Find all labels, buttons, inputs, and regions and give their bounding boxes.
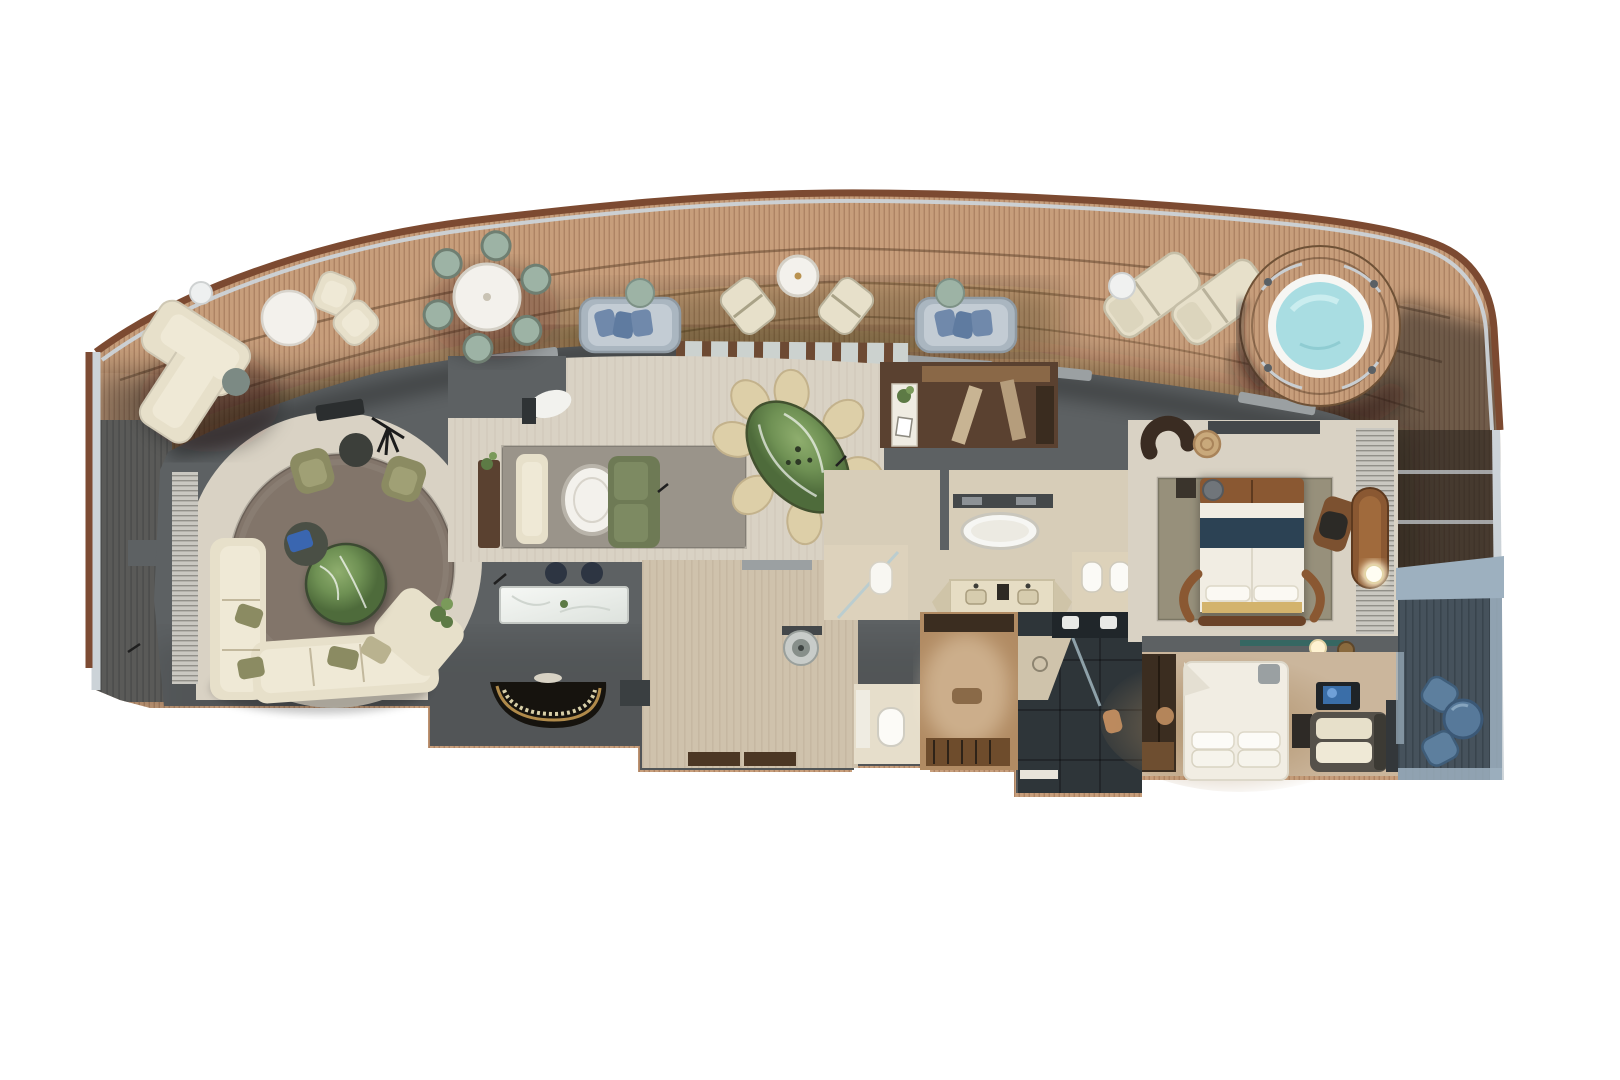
deck-side-table [190, 282, 212, 304]
master-bathroom [824, 470, 1140, 620]
aft-private-balcony [1396, 556, 1504, 780]
powder-room [854, 684, 930, 764]
toilet [1082, 562, 1102, 592]
whirlpool-tub [1239, 246, 1400, 406]
bench [952, 688, 982, 704]
console-with-plant [892, 384, 917, 446]
sink [966, 590, 986, 604]
louver-wardrobe [172, 472, 198, 684]
second-bedroom [1100, 648, 1398, 792]
pantry [880, 362, 1058, 448]
nightstand [1292, 714, 1312, 748]
drink-table [1109, 273, 1135, 299]
nightstand [1176, 478, 1196, 498]
sink [1018, 590, 1038, 604]
tray [997, 584, 1009, 600]
green-sofa [608, 456, 660, 548]
walk-in-closet [920, 612, 1018, 770]
foot-bench [1198, 616, 1306, 626]
sage-side-table [222, 368, 250, 396]
guest-bed [1184, 662, 1288, 780]
wood-console [478, 460, 500, 548]
wall-tv [522, 398, 536, 424]
toilet [870, 562, 892, 594]
navy-runner [1200, 518, 1304, 548]
suite-floor-plan [0, 0, 1620, 1080]
toilet [878, 708, 904, 746]
entry-door-mat [744, 752, 796, 766]
king-bed [1184, 476, 1321, 626]
sculpture-basin [784, 631, 818, 665]
sink [1062, 616, 1079, 629]
glass-door [1396, 652, 1404, 744]
tv [1316, 682, 1360, 710]
bar-stool [581, 562, 603, 584]
entry-door-mat [688, 752, 740, 766]
bidet [1110, 562, 1130, 592]
master-bedroom [1128, 420, 1398, 642]
floor-plan-canvas [0, 0, 1620, 1080]
glass-shelf [1240, 640, 1344, 646]
folded-blanket [1258, 664, 1280, 684]
wardrobe-rail [926, 738, 1010, 766]
dresser [1142, 742, 1174, 770]
bar-stool [545, 562, 567, 584]
round-side-table [284, 522, 328, 566]
closet [620, 680, 650, 706]
throw-blanket [1202, 602, 1302, 613]
deck-coffee-table [262, 291, 316, 345]
small-round-table [339, 433, 373, 467]
stool [1156, 707, 1174, 725]
guest-sofa [1310, 712, 1388, 772]
music-lounge [478, 446, 746, 548]
vanity [856, 690, 870, 748]
round-pillow [1203, 480, 1223, 500]
sink [1100, 616, 1117, 629]
wardrobe-rail [924, 614, 1014, 632]
wall-cabinet [1208, 421, 1320, 434]
rattan-table [1194, 431, 1220, 457]
